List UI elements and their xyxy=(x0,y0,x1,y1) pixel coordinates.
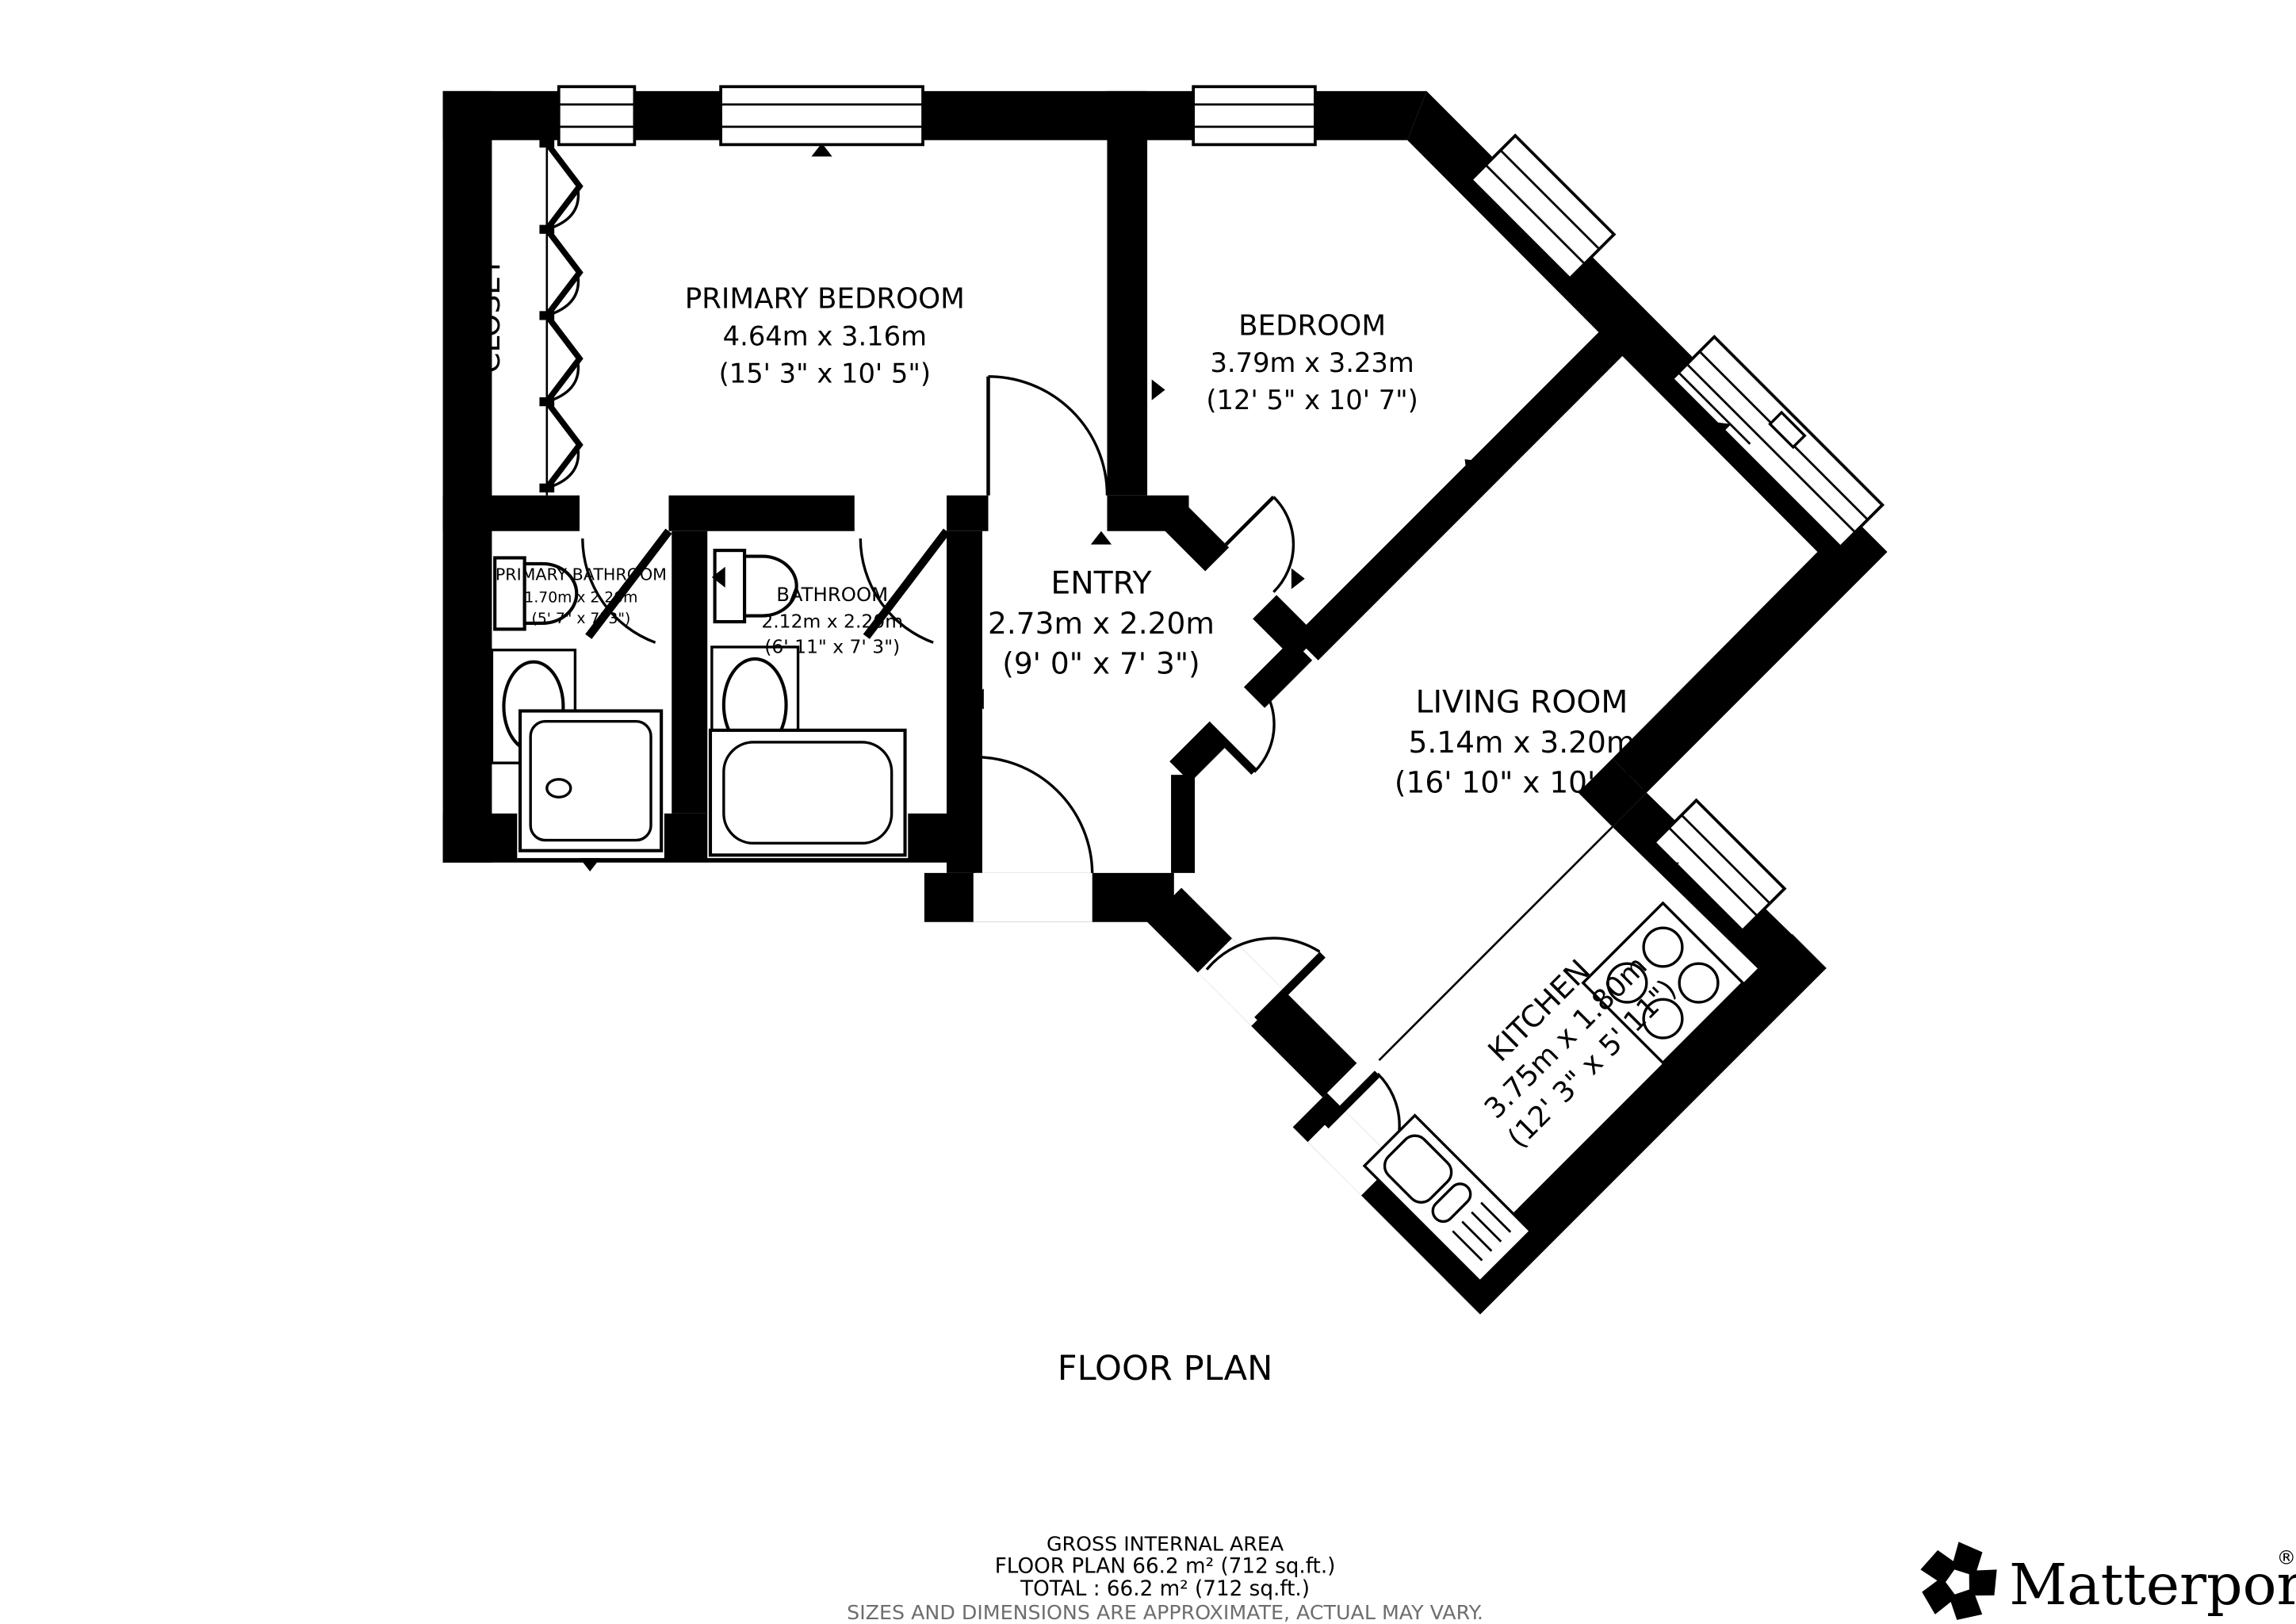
matterport-logo-icon xyxy=(1915,1542,2003,1624)
label-bedroom-imperial: (12' 5" x 10' 7") xyxy=(1206,385,1418,416)
label-entry-imperial: (9' 0" x 7' 3") xyxy=(1002,646,1200,681)
page-title: FLOOR PLAN xyxy=(1058,1349,1273,1388)
wall-mid-h2 xyxy=(668,496,854,531)
bifold-tick-1 xyxy=(539,139,554,147)
matterport-logo-text: Matterport xyxy=(2009,1552,2296,1618)
floor-plan-page: CLOSET PRIMARY BEDROOM 4.64m x 3.16m (15… xyxy=(0,0,2296,1624)
bifold-tick-2 xyxy=(539,225,554,234)
closet-bifold-doors xyxy=(539,139,580,496)
footer: GROSS INTERNAL AREA FLOOR PLAN 66.2 m² (… xyxy=(847,1533,1483,1624)
marker-primary-bedroom-door xyxy=(1091,531,1112,545)
label-bedroom-name: BEDROOM xyxy=(1238,309,1386,342)
floor-plan-canvas: CLOSET PRIMARY BEDROOM 4.64m x 3.16m (15… xyxy=(0,0,2296,1624)
wall-entry-se-vert xyxy=(1171,775,1195,873)
room-labels: CLOSET PRIMARY BEDROOM 4.64m x 3.16m (15… xyxy=(472,258,1683,1155)
label-entry-metric: 2.73m x 2.20m xyxy=(988,606,1215,641)
label-primary-bedroom-name: PRIMARY BEDROOM xyxy=(685,283,965,316)
marker-bedroom-door xyxy=(1291,569,1305,589)
bifold-tick-4 xyxy=(539,397,554,406)
door-front-opening xyxy=(974,873,1093,922)
label-entry-name: ENTRY xyxy=(1050,565,1152,601)
door-primary-bedroom xyxy=(988,377,1107,496)
wall-mid-h1 xyxy=(443,496,580,531)
label-primary-bedroom-imperial: (15' 3" x 10' 5") xyxy=(719,358,931,389)
window-closet-top xyxy=(559,86,635,144)
door-bedroom xyxy=(1226,497,1293,592)
bathtub-icon xyxy=(710,730,905,855)
wall-left xyxy=(443,91,492,863)
door-front xyxy=(974,757,1093,922)
label-primary-bathroom-imperial: (5' 7" x 7' 3") xyxy=(532,611,631,627)
label-primary-bathroom-metric: 1.70m x 2.20m xyxy=(524,590,637,607)
bifold-tick-3 xyxy=(539,311,554,320)
wall-mid-h3 xyxy=(947,496,988,531)
label-closet: CLOSET xyxy=(472,258,507,373)
matterport-registered-icon: ® xyxy=(2277,1545,2296,1568)
disclaimer-line: SIZES AND DIMENSIONS ARE APPROXIMATE, AC… xyxy=(847,1601,1483,1624)
wall-bedroom-living xyxy=(1295,331,1624,661)
bifold-tick-5 xyxy=(539,484,554,492)
label-living-room-name: LIVING ROOM xyxy=(1416,684,1628,720)
window-bedroom-top xyxy=(1193,86,1315,144)
floor-plan-area-line: FLOOR PLAN 66.2 m² (712 sq.ft.) xyxy=(995,1555,1336,1579)
label-living-room-imperial: (16' 10" x 10' 6") xyxy=(1395,765,1649,800)
walls xyxy=(443,91,1888,1315)
shower-icon xyxy=(520,711,661,851)
label-primary-bedroom-metric: 4.64m x 3.16m xyxy=(723,320,927,351)
gross-internal-area-label: GROSS INTERNAL AREA xyxy=(1047,1533,1284,1556)
door-entry-living xyxy=(1207,676,1274,772)
label-primary-bathroom-name: PRIMARY BATHROOM xyxy=(496,565,667,584)
window-living-sliding xyxy=(1672,337,1882,547)
window-primary-bedroom xyxy=(721,86,923,144)
marker-shower xyxy=(580,858,600,871)
total-area-line: TOTAL : 66.2 m² (712 sq.ft.) xyxy=(1020,1577,1310,1601)
label-bathroom-imperial: (6' 11" x 7' 3") xyxy=(764,635,900,657)
wall-bathrooms-divider xyxy=(672,531,707,814)
label-bedroom-metric: 3.79m x 3.23m xyxy=(1210,347,1414,378)
marker-bedrooms-wall xyxy=(1152,380,1165,400)
label-bathroom-metric: 2.12m x 2.20m xyxy=(761,611,903,633)
wall-bedrooms-divider xyxy=(1107,91,1147,496)
wall-se-living xyxy=(1613,552,1888,793)
label-bathroom-name: BATHROOM xyxy=(776,583,888,606)
brand: Matterport ® xyxy=(1915,1542,2296,1624)
label-living-room-metric: 5.14m x 3.20m xyxy=(1408,725,1635,760)
